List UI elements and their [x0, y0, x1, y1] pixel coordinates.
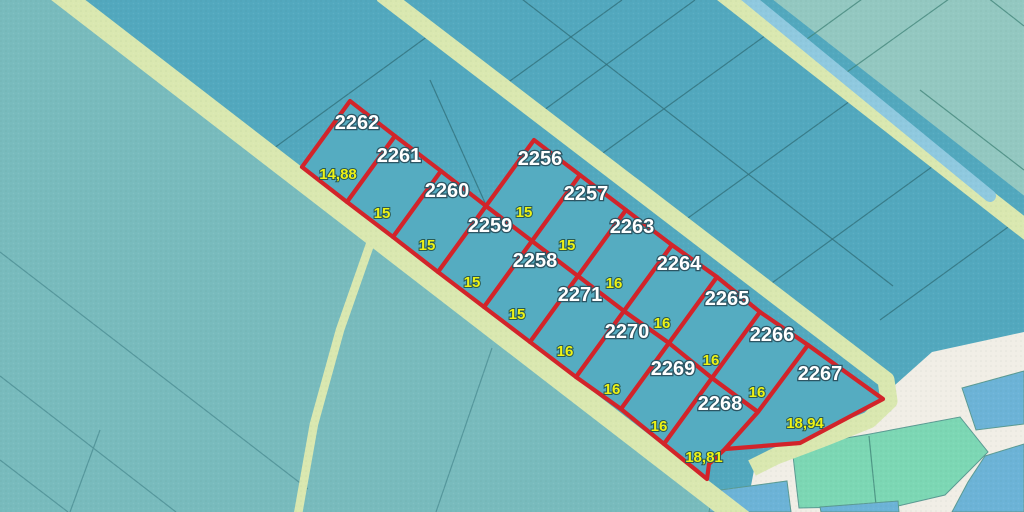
measurement-label: 16: [651, 418, 668, 435]
parcel-2260-label: 2260: [425, 180, 470, 202]
measurement-label: 16: [703, 352, 720, 369]
measurement-label: 18,94: [786, 415, 824, 432]
parcel-2264-label: 2264: [657, 253, 702, 275]
map-viewport[interactable]: 2262 2261 2260 2259 2258 2271 2270 2269 …: [0, 0, 1024, 512]
measurement-label: 16: [557, 343, 574, 360]
parcel-2267-label: 2267: [798, 363, 843, 385]
parcel-2261-label: 2261: [377, 145, 422, 167]
parcel-2271-label: 2271: [558, 284, 603, 306]
measurement-label: 15: [509, 306, 526, 323]
measurement-label: 15: [559, 237, 576, 254]
measurement-label: 15: [419, 237, 436, 254]
parcel-2270-label: 2270: [605, 321, 650, 343]
parcel-2257-label: 2257: [564, 183, 609, 205]
parcel-2268-label: 2268: [698, 393, 743, 415]
parcel-2269-label: 2269: [651, 358, 696, 380]
measurement-label: 18,81: [685, 449, 723, 466]
parcel-2263-label: 2263: [610, 216, 655, 238]
measurement-label: 15: [516, 204, 533, 221]
measurement-label: 16: [606, 275, 623, 292]
measurement-label: 16: [654, 315, 671, 332]
measurement-label: 15: [464, 274, 481, 291]
measurement-label: 16: [604, 381, 621, 398]
parcel-2265-label: 2265: [705, 288, 750, 310]
measurement-label: 14,88: [319, 166, 357, 183]
cadastral-map[interactable]: 2262 2261 2260 2259 2258 2271 2270 2269 …: [0, 0, 1024, 512]
measurement-label: 16: [749, 384, 766, 401]
parcel-2256-label: 2256: [518, 148, 563, 170]
parcel-2259-label: 2259: [468, 215, 513, 237]
parcel-2258-label: 2258: [513, 250, 558, 272]
parcel-2262-label: 2262: [335, 112, 380, 134]
measurement-label: 15: [374, 205, 391, 222]
parcel-2266-label: 2266: [750, 324, 795, 346]
